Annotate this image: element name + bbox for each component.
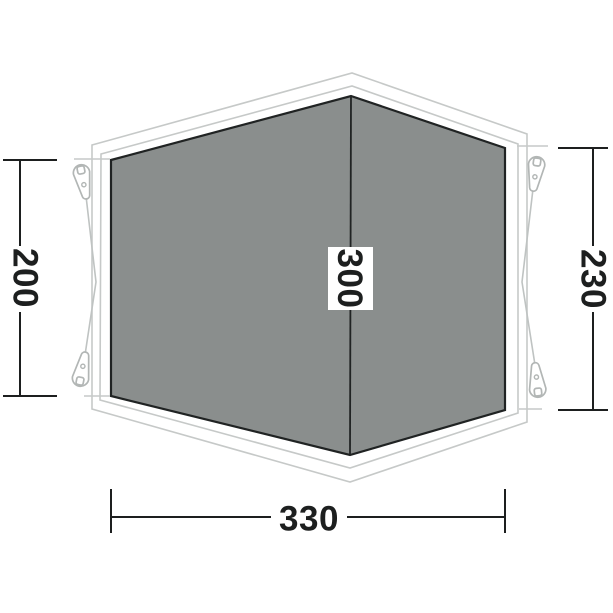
dimension-left-label: 200 [5, 248, 44, 308]
diagram-canvas: 200 230 330 300 [0, 0, 613, 613]
peg-loop-top-right-icon [525, 156, 546, 193]
dimension-width-label: 330 [279, 500, 339, 539]
dimension-right-label: 230 [573, 249, 612, 309]
peg-loop-bottom-left-icon [71, 351, 94, 388]
peg-loop-bottom-right-icon [527, 362, 547, 398]
dimension-ridge-label: 300 [330, 249, 369, 309]
tent-footprint-diagram: 200 230 330 300 [0, 0, 613, 613]
groundsheet [111, 96, 505, 455]
